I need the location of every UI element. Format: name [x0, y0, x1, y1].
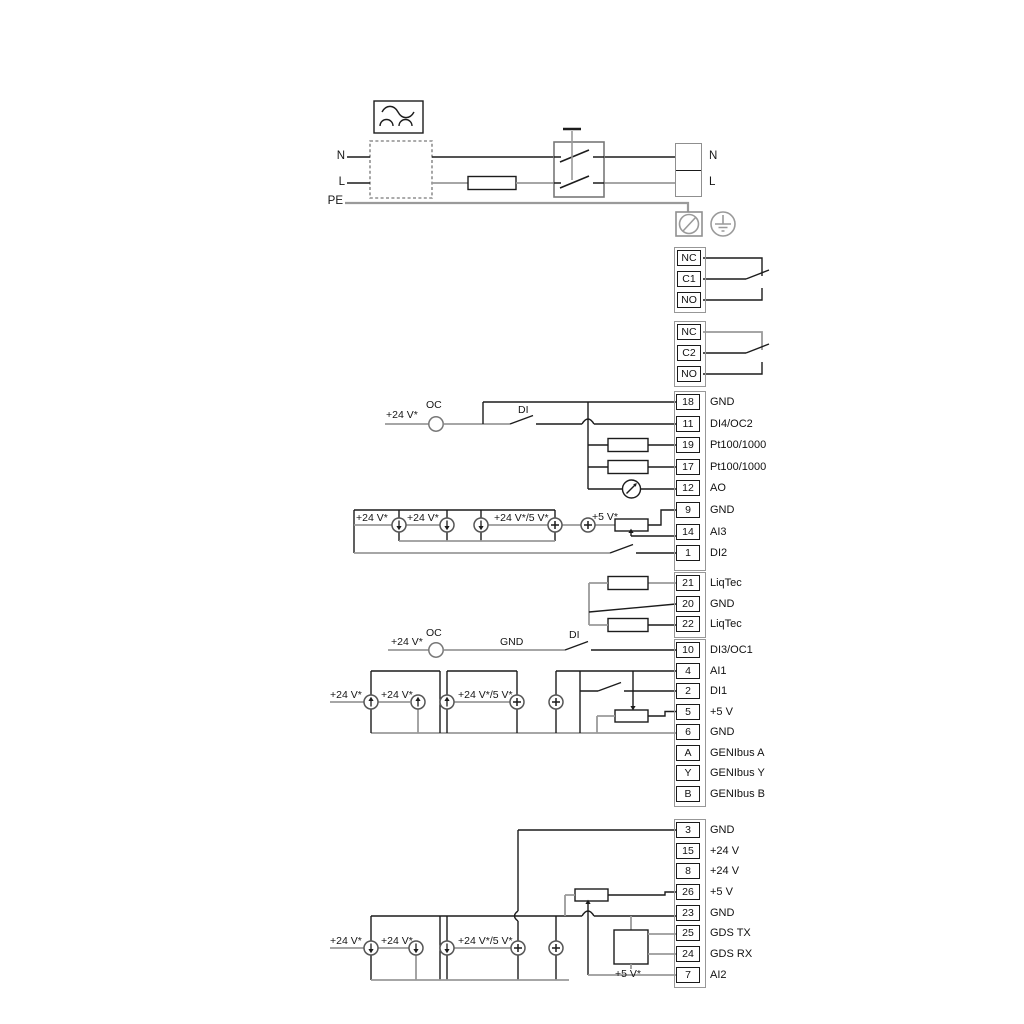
- terminal-label: GDS RX: [710, 948, 752, 960]
- resistor-pt100-2: [608, 461, 648, 474]
- terminal-10: 10: [676, 642, 700, 658]
- terminal-2: 2: [676, 683, 700, 699]
- terminal-label: GND: [710, 726, 734, 738]
- voltage-source-icon: [549, 695, 563, 709]
- terminal-12: 12: [676, 480, 700, 496]
- open-collector-icon: [429, 417, 443, 431]
- terminal-14: 14: [676, 524, 700, 540]
- terminal-19: 19: [676, 437, 700, 453]
- di2-switch: [610, 545, 633, 554]
- terminal-row: AGENIbus A: [676, 745, 700, 761]
- terminal-no2: NO: [677, 366, 701, 382]
- terminal-c1: C1: [677, 271, 701, 287]
- current-source-icon: [364, 941, 378, 955]
- terminal-row: 8+24 V: [676, 863, 700, 879]
- wire-pe: [345, 203, 688, 212]
- di4-oc2-section: [385, 402, 676, 498]
- terminal-11: 11: [676, 416, 700, 432]
- terminal-label: GND: [710, 504, 734, 516]
- terminal-genibus-b: B: [676, 786, 700, 802]
- resistor-pt100-1: [608, 439, 648, 452]
- terminal-nc1: NC: [677, 250, 701, 266]
- terminal-label: GDS TX: [710, 927, 751, 939]
- terminal-1: 1: [676, 545, 700, 561]
- mains-terminal-n: [676, 144, 701, 170]
- plus24-label: +24 V*: [386, 409, 418, 421]
- relay-1-contact: [703, 258, 769, 300]
- terminal-label: LiqTec: [710, 577, 742, 589]
- terminal-row: 1DI2: [676, 545, 700, 561]
- terminal-label: GND: [710, 598, 734, 610]
- di-switch: [510, 416, 533, 425]
- di3-switch: [565, 642, 588, 651]
- l-in-label: L: [331, 176, 345, 188]
- terminal-c2: C2: [677, 345, 701, 361]
- terminal-row: 10DI3/OC1: [676, 642, 700, 658]
- terminal-3: 3: [676, 822, 700, 838]
- voltage-source-icon: [511, 941, 525, 955]
- terminal-row: 2DI1: [676, 683, 700, 699]
- terminal-label: +5 V: [710, 886, 733, 898]
- power-switch: [554, 129, 604, 197]
- relay-1-strip: NC C1 NO: [677, 250, 701, 313]
- terminal-label: AI1: [710, 665, 727, 677]
- current-source-icon: [440, 695, 454, 709]
- l-out-label: L: [709, 176, 715, 188]
- terminal-strip-2: 10DI3/OC1 4AI1 2DI1 5+5 V 6GND AGENIbus …: [676, 642, 700, 806]
- terminal-row: 7AI2: [676, 967, 700, 983]
- meter-icon: [623, 480, 641, 498]
- terminal-label: DI4/OC2: [710, 418, 753, 430]
- wiring-diagram-page: { "mains": { "n_in": "N", "l_in": "L", "…: [0, 0, 1024, 1024]
- plus5-label: +5 V*: [615, 968, 641, 980]
- relay-2-strip: NC C2 NO: [677, 324, 701, 387]
- terminal-label: GENIbus Y: [710, 767, 765, 779]
- current-source-icon: [364, 695, 378, 709]
- n-out-label: N: [709, 150, 717, 162]
- terminal-15: 15: [676, 843, 700, 859]
- plus24-label: +24 V*: [391, 636, 423, 648]
- terminal-row: 14AI3: [676, 524, 700, 540]
- terminal-row: 15+24 V: [676, 843, 700, 859]
- terminal-9: 9: [676, 502, 700, 518]
- filter-box: [370, 141, 432, 198]
- terminal-row: 19Pt100/1000: [676, 437, 700, 453]
- plus24or5-label: +24 V*/5 V*: [458, 935, 513, 947]
- terminal-row: 18GND: [676, 394, 700, 410]
- terminal-row: 23GND: [676, 905, 700, 921]
- terminal-22: 22: [676, 616, 700, 632]
- oc-label: OC: [426, 627, 442, 639]
- plus24-label: +24 V*: [330, 935, 362, 947]
- terminal-row: 12AO: [676, 480, 700, 496]
- terminal-row: YGENIbus Y: [676, 765, 700, 781]
- terminal-row: NC: [677, 324, 701, 340]
- terminal-no1: NO: [677, 292, 701, 308]
- mains-terminal-block: [675, 143, 702, 197]
- terminal-row: 3GND: [676, 822, 700, 838]
- mains-terminal-l: [676, 170, 701, 196]
- terminal-8: 8: [676, 863, 700, 879]
- liqtec-resistor-1: [608, 577, 648, 590]
- earth-icon: [711, 212, 735, 236]
- terminal-label: GND: [710, 907, 734, 919]
- screw-terminal-icon: [676, 212, 702, 236]
- potentiometer: [615, 510, 676, 536]
- pe-label: PE: [320, 195, 343, 207]
- terminal-label: +24 V: [710, 865, 739, 877]
- terminal-row: NO: [677, 366, 701, 382]
- terminal-strip-3: 3GND 15+24 V 8+24 V 26+5 V 23GND 25GDS T…: [676, 822, 700, 988]
- terminal-row: 22LiqTec: [676, 616, 700, 632]
- liqtec-section: [589, 577, 676, 632]
- terminal-row: 25GDS TX: [676, 925, 700, 941]
- voltage-source-icon: [549, 941, 563, 955]
- terminal-6: 6: [676, 724, 700, 740]
- di1-switch: [598, 683, 621, 692]
- terminal-row: 20GND: [676, 596, 700, 612]
- terminal-row: 17Pt100/1000: [676, 459, 700, 475]
- terminal-4: 4: [676, 663, 700, 679]
- di-label: DI: [518, 404, 529, 416]
- terminal-label: GENIbus B: [710, 788, 765, 800]
- terminal-17: 17: [676, 459, 700, 475]
- current-source-icon: [440, 941, 454, 955]
- voltage-source-icon: [548, 518, 562, 532]
- terminal-row: 5+5 V: [676, 704, 700, 720]
- terminal-label: DI2: [710, 547, 727, 559]
- gds-module: [614, 916, 676, 969]
- terminal-26: 26: [676, 884, 700, 900]
- terminal-row: 6GND: [676, 724, 700, 740]
- current-source-icon: [392, 518, 406, 532]
- plus24or5-label: +24 V*/5 V*: [458, 689, 513, 701]
- current-source-icon: [411, 695, 425, 709]
- terminal-row: 11DI4/OC2: [676, 416, 700, 432]
- relay-2-contact: [703, 332, 769, 374]
- terminal-label: DI1: [710, 685, 727, 697]
- terminal-strip-1: 18GND 11DI4/OC2 19Pt100/1000 17Pt100/100…: [676, 394, 700, 567]
- terminal-label: AO: [710, 482, 726, 494]
- terminal-label: LiqTec: [710, 618, 742, 630]
- current-source-icon: [474, 518, 488, 532]
- liqtec-resistor-2: [608, 619, 648, 632]
- terminal-label: AI2: [710, 969, 727, 981]
- di3-oc1-section: [388, 642, 676, 658]
- terminal-row: 4AI1: [676, 663, 700, 679]
- terminal-7: 7: [676, 967, 700, 983]
- terminal-label: +5 V: [710, 706, 733, 718]
- terminal-23: 23: [676, 905, 700, 921]
- terminal-21: 21: [676, 575, 700, 591]
- terminal-row: 9GND: [676, 502, 700, 518]
- open-collector-icon: [429, 643, 443, 657]
- terminal-row: NC: [677, 250, 701, 266]
- terminal-label: Pt100/1000: [710, 439, 766, 451]
- terminal-row: C2: [677, 345, 701, 361]
- terminal-label: AI3: [710, 526, 727, 538]
- terminal-18: 18: [676, 394, 700, 410]
- plus24-label: +24 V*: [381, 935, 413, 947]
- gnd-label: GND: [500, 636, 523, 648]
- terminal-row: C1: [677, 271, 701, 287]
- fuse: [468, 177, 516, 190]
- terminal-24: 24: [676, 946, 700, 962]
- terminal-label: +24 V: [710, 845, 739, 857]
- liqtec-strip: 21LiqTec 20GND 22LiqTec: [676, 575, 700, 637]
- terminal-row: NO: [677, 292, 701, 308]
- terminal-20: 20: [676, 596, 700, 612]
- terminal-row: 24GDS RX: [676, 946, 700, 962]
- plus24-label: +24 V*: [381, 689, 413, 701]
- terminal-nc2: NC: [677, 324, 701, 340]
- oc-label: OC: [426, 399, 442, 411]
- terminal-label: Pt100/1000: [710, 461, 766, 473]
- n-in-label: N: [331, 150, 345, 162]
- terminal-25: 25: [676, 925, 700, 941]
- terminal-genibus-y: Y: [676, 765, 700, 781]
- plus24-label: +24 V*: [407, 512, 439, 524]
- terminal-row: BGENIbus B: [676, 786, 700, 802]
- plus5-label: +5 V*: [592, 511, 618, 523]
- ai1-source-row: [330, 671, 676, 733]
- current-source-icon: [440, 518, 454, 532]
- terminal-genibus-a: A: [676, 745, 700, 761]
- terminal-row: 21LiqTec: [676, 575, 700, 591]
- terminal-label: GND: [710, 396, 734, 408]
- terminal-label: GENIbus A: [710, 747, 764, 759]
- plus24-label: +24 V*: [330, 689, 362, 701]
- potentiometer: [597, 671, 676, 733]
- terminal-row: 26+5 V: [676, 884, 700, 900]
- di-label: DI: [569, 629, 580, 641]
- plus24or5-label: +24 V*/5 V*: [494, 512, 549, 524]
- plus24-label: +24 V*: [356, 512, 388, 524]
- terminal-label: GND: [710, 824, 734, 836]
- ai2-source-row: [330, 830, 676, 980]
- terminal-5: 5: [676, 704, 700, 720]
- ac-supply-icon: [374, 101, 423, 133]
- terminal-label: DI3/OC1: [710, 644, 753, 656]
